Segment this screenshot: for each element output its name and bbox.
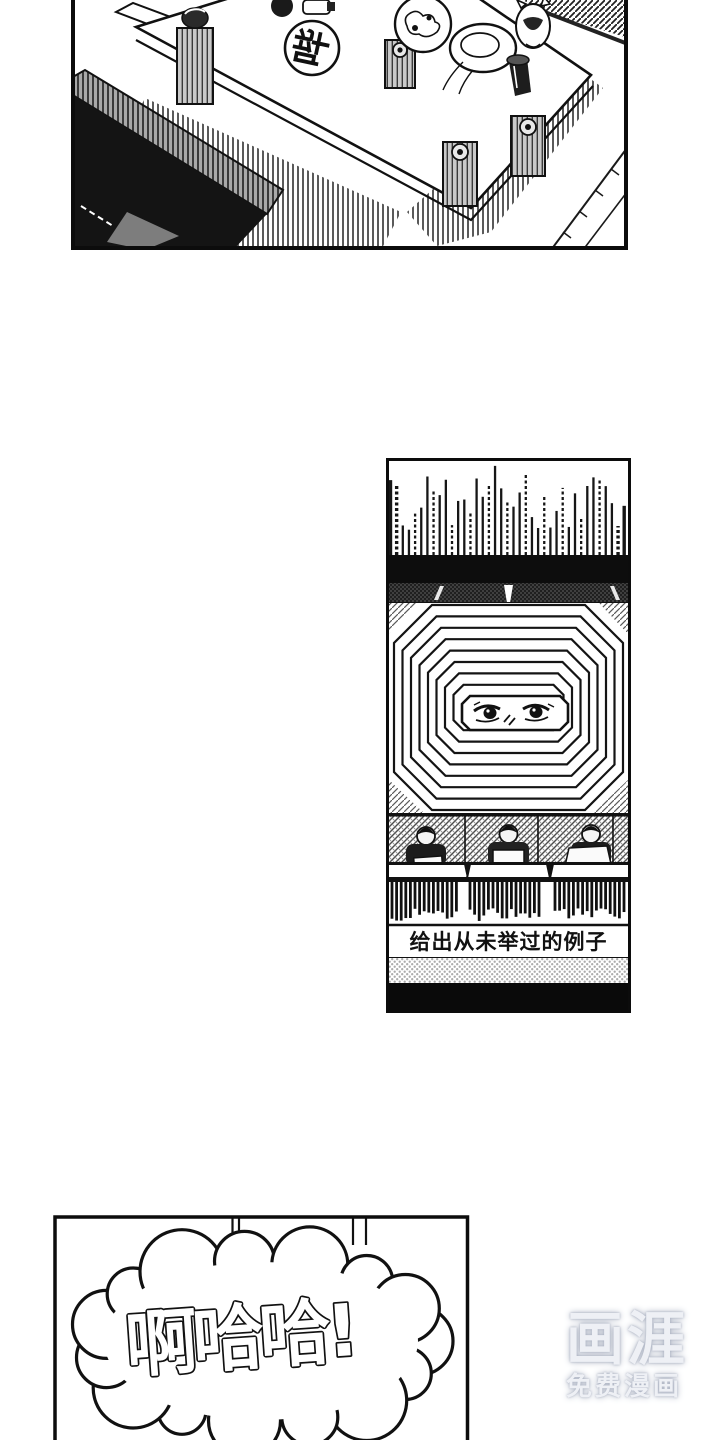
comic-page: 哔	[0, 0, 720, 1440]
panel-laughter: 啊哈哈! 啊哈哈!	[53, 1215, 470, 1440]
desk-fringe-art	[392, 882, 624, 921]
judges-art	[386, 813, 631, 921]
panel-tv-studio: 给出从未举过的例子	[386, 458, 631, 1013]
watermark-tagline: 免费漫画	[566, 1374, 688, 1400]
sfx-bubble: 哔	[285, 21, 339, 75]
watermark-logo: 画涯	[566, 1310, 688, 1368]
light-streaks-art	[391, 466, 625, 555]
halftone-band	[388, 958, 629, 983]
eyes-art	[462, 696, 568, 730]
speech-text: 啊哈哈!	[123, 1288, 357, 1388]
ceiling-black-band	[388, 555, 629, 583]
ceiling-hatch-band	[388, 583, 629, 603]
panel-living-room: 哔	[71, 0, 628, 250]
watermark: 画涯 免费漫画	[566, 1310, 688, 1400]
caption-text: 给出从未举过的例子	[410, 930, 608, 954]
bottom-black-band	[388, 983, 629, 1011]
concentric-screen-art	[388, 603, 629, 813]
caption-strip: 给出从未举过的例子	[388, 925, 629, 958]
